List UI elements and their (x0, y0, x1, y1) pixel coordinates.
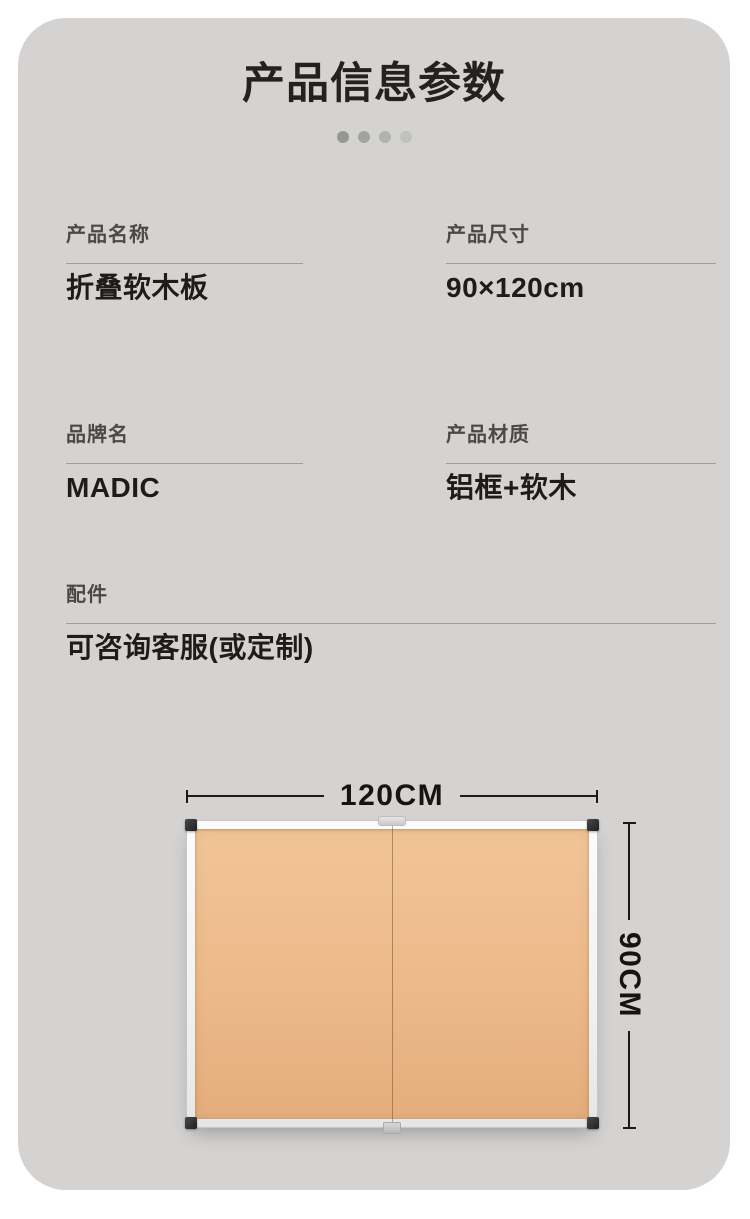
dimension-tick (623, 1127, 636, 1129)
spec-value: 铝框+软木 (446, 470, 716, 506)
spec-item-material: 产品材质 铝框+软木 (446, 422, 716, 506)
spec-label: 品牌名 (66, 422, 303, 448)
cork-board-image (186, 820, 598, 1128)
pagination-dot (337, 131, 349, 143)
dimension-line (628, 824, 630, 920)
pagination-dot (379, 131, 391, 143)
dimension-tick (596, 790, 598, 803)
spec-label: 产品材质 (446, 422, 716, 448)
spec-value: MADIC (66, 470, 303, 506)
spec-item-product-name: 产品名称 折叠软木板 (66, 222, 303, 306)
dimension-line (628, 1031, 630, 1127)
pagination-dot (400, 131, 412, 143)
spec-label: 配件 (66, 582, 716, 608)
spec-divider (66, 263, 303, 264)
spec-item-accessories: 配件 可咨询客服(或定制) (66, 582, 716, 666)
height-dimension: 90CM (615, 822, 643, 1129)
spec-item-brand-name: 品牌名 MADIC (66, 422, 303, 506)
corner-cap-bottom-right (587, 1117, 599, 1129)
width-dimension-label: 120CM (340, 779, 444, 813)
corner-cap-top-left (185, 819, 197, 831)
spec-value: 90×120cm (446, 270, 716, 306)
product-info-page: 产品信息参数 产品名称 折叠软木板 产品尺寸 90×120cm 品牌名 MADI… (0, 0, 750, 1219)
spec-card: 产品信息参数 产品名称 折叠软木板 产品尺寸 90×120cm 品牌名 MADI… (18, 18, 730, 1190)
spec-divider (446, 463, 716, 464)
board-top-hinge (378, 816, 406, 826)
pagination-dots (18, 131, 730, 143)
spec-label: 产品尺寸 (446, 222, 716, 248)
spec-value: 折叠软木板 (66, 270, 303, 306)
width-dimension: 120CM (186, 778, 598, 814)
spec-item-product-size: 产品尺寸 90×120cm (446, 222, 716, 306)
spec-divider (446, 263, 716, 264)
spec-label: 产品名称 (66, 222, 303, 248)
pagination-dot (358, 131, 370, 143)
height-dimension-label: 90CM (612, 932, 646, 1018)
spec-divider (66, 463, 303, 464)
dimension-line (460, 795, 596, 797)
corner-cap-top-right (587, 819, 599, 831)
board-bottom-hinge (383, 1122, 401, 1134)
board-fold-line (392, 821, 393, 1127)
spec-value: 可咨询客服(或定制) (66, 630, 716, 666)
corner-cap-bottom-left (185, 1117, 197, 1129)
page-title: 产品信息参数 (18, 58, 730, 110)
dimension-line (188, 795, 324, 797)
spec-divider (66, 623, 716, 624)
